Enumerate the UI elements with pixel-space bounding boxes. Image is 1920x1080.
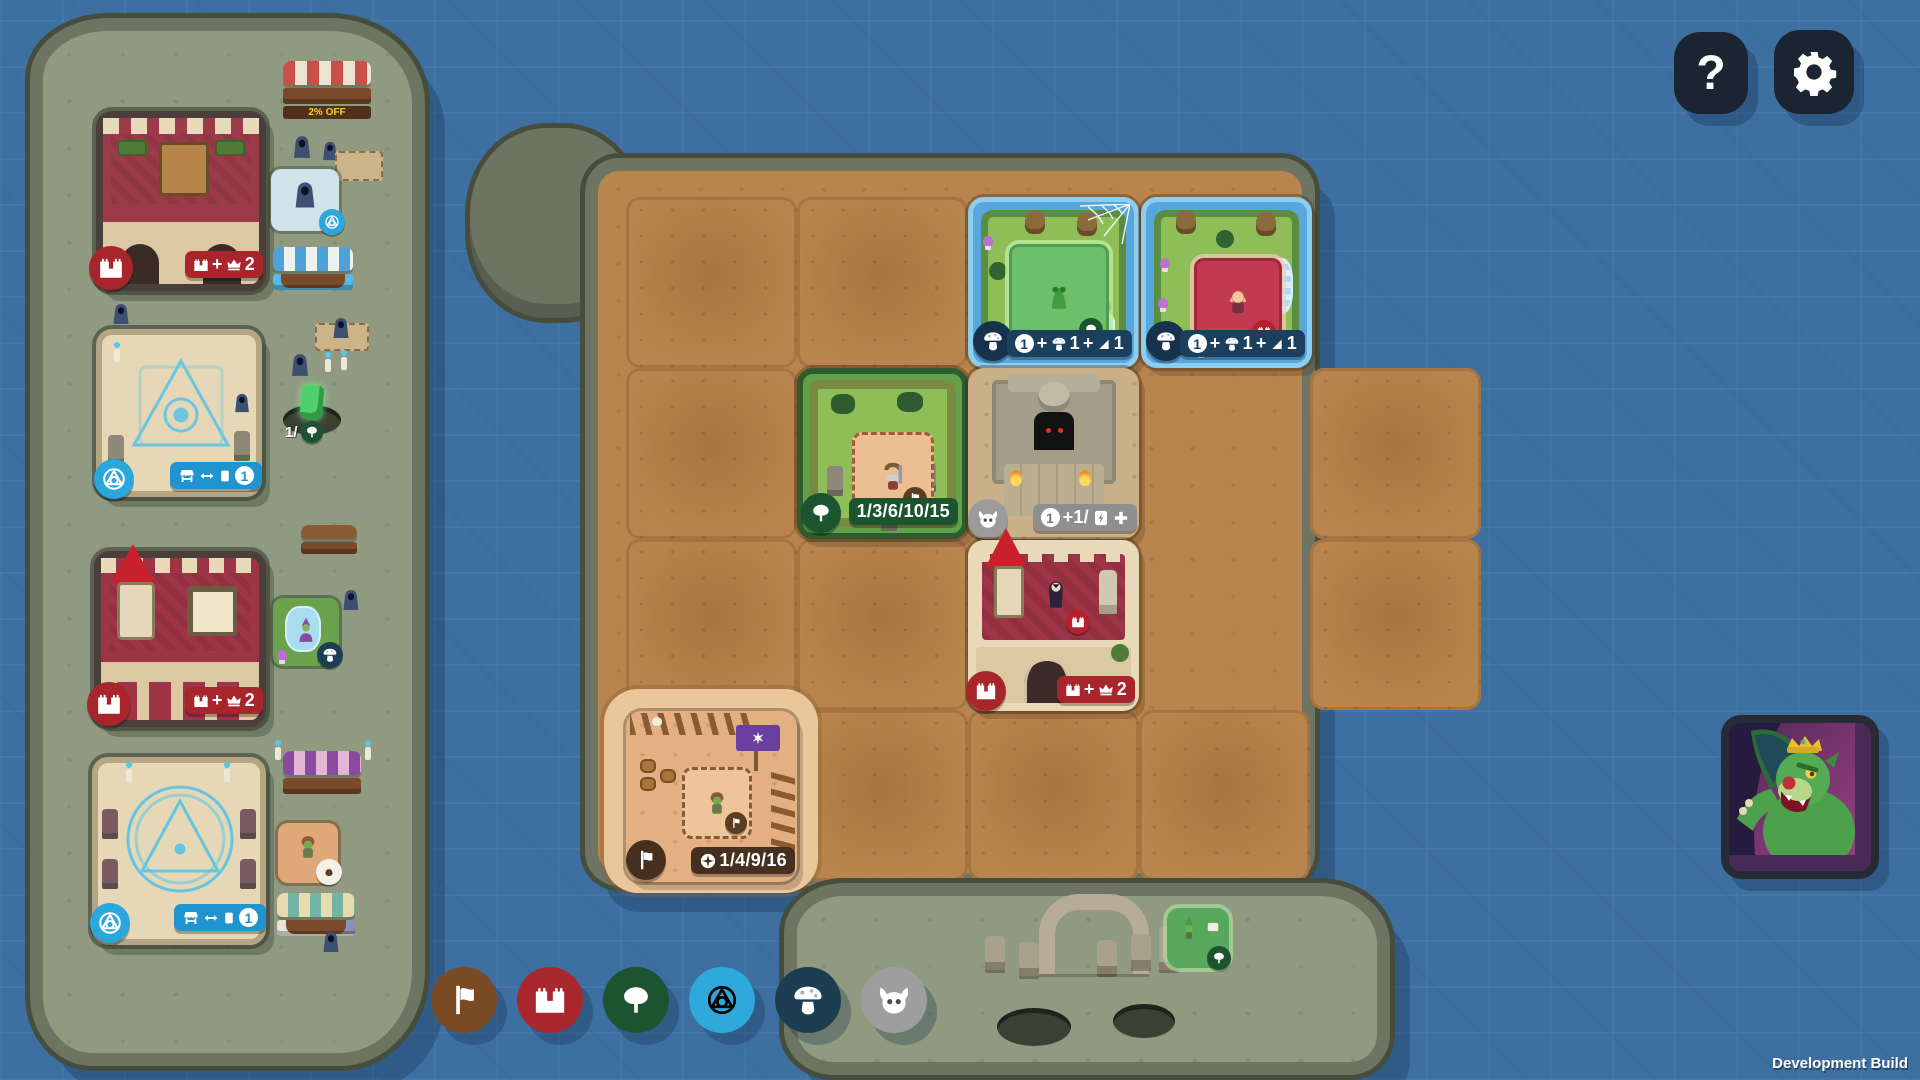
castle-housing-pill: +2	[1057, 676, 1135, 703]
burst-coin-icon	[699, 852, 717, 870]
castle-badge	[87, 682, 131, 726]
plus-text: +	[212, 690, 223, 711]
demon-face-carving	[1038, 382, 1070, 412]
cultist-figure	[289, 133, 315, 161]
candle	[325, 359, 331, 372]
ritual-candle	[114, 349, 120, 362]
ritual-courtyard-bottom[interactable]: 1	[92, 757, 266, 945]
swap-arrows-icon	[203, 910, 219, 926]
forest-grove-tile[interactable]: 1/3/6/10/15	[797, 368, 968, 539]
mushroom-icon	[1155, 330, 1177, 352]
money-rug	[335, 151, 383, 181]
ritual-candle	[224, 769, 230, 782]
quest-reward-pill: 1+1+1	[1180, 330, 1305, 357]
gear-icon	[1790, 48, 1838, 96]
ritual-trade-pill: 1	[170, 462, 262, 489]
candle	[275, 747, 281, 760]
goblin-character	[704, 789, 730, 817]
divider-text: +1/	[1063, 507, 1089, 528]
castle-icon	[96, 691, 122, 717]
mushroom-icon	[1224, 336, 1240, 352]
demon-helmet-icon	[877, 983, 911, 1017]
wooden-stand-table	[301, 542, 357, 554]
pond-witch	[293, 616, 319, 644]
ritual-alchemy-badge	[94, 459, 134, 499]
tree-filter-button[interactable]	[603, 967, 669, 1033]
board-platform: 1+1+1 1+1+1	[585, 158, 1315, 886]
digging-card[interactable]	[278, 823, 338, 883]
castle-housing-pill: +2	[185, 687, 263, 714]
dead-tree	[1025, 210, 1045, 234]
ruin-pillar	[1131, 934, 1151, 968]
board-cell-empty[interactable]	[626, 197, 797, 368]
game-screen: +2 1	[0, 0, 1920, 1080]
card-icon	[222, 911, 236, 925]
tree-mini-badge	[1207, 946, 1231, 970]
mushroom-mini-badge	[317, 642, 343, 668]
board-cell-empty[interactable]	[968, 710, 1139, 881]
castle-icon	[193, 693, 209, 709]
statue	[1099, 570, 1117, 614]
castle-filter-button[interactable]	[517, 967, 583, 1033]
elf-character	[1224, 289, 1252, 319]
skull-stall-table	[277, 920, 355, 936]
flag-icon	[447, 983, 481, 1017]
crystal-well[interactable]: 1/	[281, 383, 343, 445]
forest-progress-pill: 1/3/6/10/15	[849, 498, 958, 525]
mushroom-filter-button[interactable]	[775, 967, 841, 1033]
alchemy-mini-badge	[319, 209, 345, 235]
brazier-pillar	[102, 859, 118, 889]
dev-build-label: Development Build	[1772, 1055, 1908, 1072]
camp-progress-pill: 1/4/9/16	[691, 847, 795, 874]
board-cell-empty[interactable]	[1310, 539, 1481, 710]
barrel	[640, 777, 656, 791]
pond-card[interactable]	[273, 598, 339, 666]
gem-stall[interactable]	[273, 247, 353, 290]
dwarf-character	[878, 459, 908, 491]
board-cell-empty[interactable]	[626, 368, 797, 539]
burrow-pit	[997, 1008, 1071, 1046]
coin-icon: 1	[235, 466, 254, 485]
torch-flame	[1079, 470, 1091, 486]
question-mark-icon: ?	[1696, 46, 1725, 101]
barrel	[640, 759, 656, 773]
count-text: 1	[1070, 333, 1080, 354]
tree-icon	[1212, 951, 1226, 965]
flag-mini-badge	[725, 812, 747, 834]
skull-stall-awning	[277, 893, 355, 917]
mantis-creature	[1042, 278, 1076, 314]
summoning-circle-glyph	[120, 779, 240, 899]
spike-fence	[630, 713, 750, 735]
crystal-counter-row: 1/	[285, 421, 323, 443]
board-cell-empty[interactable]	[626, 539, 797, 710]
vampire-character	[1042, 578, 1070, 610]
flag-faction-badge	[626, 840, 666, 880]
bush	[897, 392, 923, 412]
charge-card-icon	[1092, 509, 1110, 527]
coin-icon: 1	[1041, 508, 1060, 527]
castle-icon	[1071, 615, 1085, 629]
plus-text: +	[212, 254, 223, 275]
stall-icon	[178, 467, 196, 485]
alchemy-icon	[324, 214, 340, 230]
plus-text: +	[1210, 333, 1221, 354]
cultist-figure	[329, 315, 353, 341]
count-text: 2	[245, 690, 255, 711]
quest-reward-pill: 1+1+1	[1007, 330, 1132, 357]
manor-building[interactable]: +2	[96, 111, 266, 291]
castle-window-grid	[187, 586, 237, 636]
stall-icon	[182, 909, 200, 927]
quest-tile-forest-web[interactable]: 1+1+1	[968, 197, 1139, 368]
demon-helmet-icon	[977, 508, 999, 530]
manor-planter-right	[215, 140, 245, 156]
boss-portrait[interactable]	[1721, 715, 1879, 879]
candle	[365, 747, 371, 760]
wooden-stand-roof	[301, 525, 357, 539]
settings-button[interactable]	[1774, 30, 1854, 114]
dead-tree	[1176, 210, 1196, 234]
tree-mini-badge	[301, 421, 323, 443]
war-banner	[736, 725, 780, 751]
troll-king-art	[1729, 723, 1855, 855]
gem-stall-awning	[273, 247, 353, 271]
castle-faction-badge	[966, 671, 1006, 711]
gem-stall-table	[273, 274, 353, 290]
mushroom-sprite	[1158, 298, 1168, 308]
castle-mini-badge	[1066, 610, 1090, 634]
board-cell-empty[interactable]	[797, 197, 968, 368]
plus-text: +	[1037, 333, 1048, 354]
left-island: +2 1	[30, 18, 425, 1066]
ruin-pillar	[1097, 940, 1117, 974]
dead-tree	[1256, 212, 1276, 236]
garden-bush	[1111, 644, 1129, 662]
plus-text: +	[1083, 333, 1094, 354]
manor-battlements	[103, 118, 259, 134]
tree-icon	[619, 983, 653, 1017]
castle-building[interactable]: +2	[94, 551, 266, 727]
barrel	[660, 769, 676, 783]
ruin-pillar	[1019, 942, 1039, 976]
ruin-pillar	[985, 936, 1005, 970]
trinket-stall-awning	[283, 751, 361, 775]
manor-castle-badge	[89, 246, 133, 290]
spire-tower	[994, 566, 1024, 618]
hooded-figure	[290, 179, 320, 211]
spell-card[interactable]	[271, 169, 339, 231]
plant-creature	[1177, 916, 1201, 942]
paw-icon	[322, 865, 336, 879]
placement-highlight-dashed[interactable]	[682, 767, 752, 839]
manor-housing-pill: +2	[185, 251, 263, 278]
dungeon-reward-pill: 1+1/	[1033, 504, 1137, 531]
skull	[652, 717, 662, 726]
plus-cross-icon	[1113, 510, 1129, 526]
brazier-pillar	[240, 859, 256, 889]
tent-icon	[1097, 337, 1111, 351]
cultist-figure	[231, 391, 253, 415]
board-cell-empty[interactable]	[797, 539, 968, 710]
tent-icon	[1270, 337, 1284, 351]
castle-icon	[533, 983, 567, 1017]
cultist-figure	[287, 351, 313, 379]
flag-icon	[730, 817, 742, 829]
count-text: 2	[1117, 679, 1127, 700]
mushroom-sprite	[983, 236, 993, 246]
shop-awning	[283, 61, 371, 85]
manor-planter-left	[117, 140, 147, 156]
castle-icon	[1065, 682, 1081, 698]
castle-spire	[111, 544, 155, 584]
seedling-tile[interactable]	[1167, 908, 1229, 968]
swap-arrows-icon	[199, 468, 215, 484]
board-cell-empty[interactable]	[1310, 368, 1481, 539]
alchemy-icon	[97, 910, 123, 936]
red-castle-tile[interactable]: +2	[968, 540, 1139, 711]
count-text: 2	[245, 254, 255, 275]
card-token-icon	[1205, 920, 1221, 934]
shop-sale-sign: 2% OFF	[283, 106, 371, 119]
plus-text: +	[1256, 333, 1267, 354]
shop-table	[283, 88, 371, 104]
tree-icon	[810, 502, 832, 524]
flag-filter-button[interactable]	[431, 967, 497, 1033]
eye-triangle-glyph	[126, 353, 236, 457]
ritual-alchemy-badge	[90, 903, 130, 943]
bush	[989, 262, 1007, 280]
discount-shop-stall[interactable]: 2% OFF	[283, 61, 371, 119]
cultist-figure	[339, 587, 363, 613]
dungeon-ruins-tile[interactable]: 1+1/	[968, 368, 1139, 539]
torch-flame	[1010, 470, 1022, 486]
candle	[341, 357, 347, 370]
board-cell-empty[interactable]	[1139, 710, 1310, 881]
dungeon-entrance	[1034, 412, 1074, 450]
cultist-figure	[319, 929, 343, 955]
ritual-candle	[126, 769, 132, 782]
tree-faction-badge	[801, 493, 841, 533]
crown-icon	[226, 693, 242, 709]
count-text: 1	[1243, 333, 1253, 354]
alchemy-icon	[101, 466, 127, 492]
green-crystal	[299, 384, 324, 420]
card-icon	[218, 469, 232, 483]
forest-progress-text: 1/3/6/10/15	[857, 501, 950, 522]
mushroom-icon	[791, 983, 825, 1017]
skull-stall[interactable]	[277, 893, 355, 936]
digging-goblin	[295, 833, 321, 861]
coin-icon: 1	[1015, 334, 1034, 353]
mushroom-sprite	[1160, 258, 1170, 268]
ritual-trade-pill: 1	[174, 904, 266, 931]
castle-icon	[975, 680, 997, 702]
sun-emblem-icon	[750, 730, 766, 746]
crystal-counter-text: 1/	[285, 424, 298, 441]
bush	[831, 394, 855, 414]
plus-text: +	[1084, 679, 1095, 700]
manor-door	[159, 142, 209, 196]
bush	[1216, 230, 1234, 248]
alchemy-filter-button[interactable]	[689, 967, 755, 1033]
castle-icon	[98, 255, 124, 281]
goblin-camp-tile[interactable]: 1/4/9/16	[626, 711, 797, 882]
trinket-stall-table	[283, 778, 361, 794]
crown-icon	[1098, 682, 1114, 698]
mushroom-icon	[982, 330, 1004, 352]
braзier-pillar	[102, 809, 118, 839]
crown-icon	[226, 257, 242, 273]
castle-spire	[986, 528, 1026, 566]
mushroom-sprite	[277, 650, 287, 660]
coin-icon: 1	[1188, 334, 1207, 353]
standing-stone	[234, 431, 250, 461]
count-text: 1	[1114, 333, 1124, 354]
brazier-pillar	[240, 809, 256, 839]
count-text: 1	[1287, 333, 1297, 354]
board-cell-empty[interactable]	[797, 710, 968, 881]
mushroom-icon	[322, 647, 338, 663]
castle-icon	[193, 257, 209, 273]
camp-progress-text: 1/4/9/16	[720, 850, 787, 871]
trinket-stall[interactable]	[283, 751, 361, 794]
castle-tower	[117, 582, 155, 640]
wooden-stand[interactable]	[301, 525, 357, 554]
alchemy-icon	[705, 983, 739, 1017]
mushroom-icon	[1051, 336, 1067, 352]
entrance-eye	[1058, 428, 1063, 433]
demon-filter-button[interactable]	[861, 967, 927, 1033]
cultist-figure	[109, 301, 133, 327]
coin-icon: 1	[239, 908, 258, 927]
entrance-eye	[1046, 428, 1051, 433]
dig-mini-badge	[316, 859, 342, 885]
tree-icon	[305, 425, 319, 439]
spider-web	[1076, 204, 1130, 244]
quest-tile-forest-falls[interactable]: 1+1+1	[1141, 197, 1312, 368]
burrow-pit	[1113, 1004, 1175, 1038]
standing-stone	[827, 466, 843, 496]
help-button[interactable]: ?	[1674, 32, 1748, 114]
flag-icon	[635, 849, 657, 871]
